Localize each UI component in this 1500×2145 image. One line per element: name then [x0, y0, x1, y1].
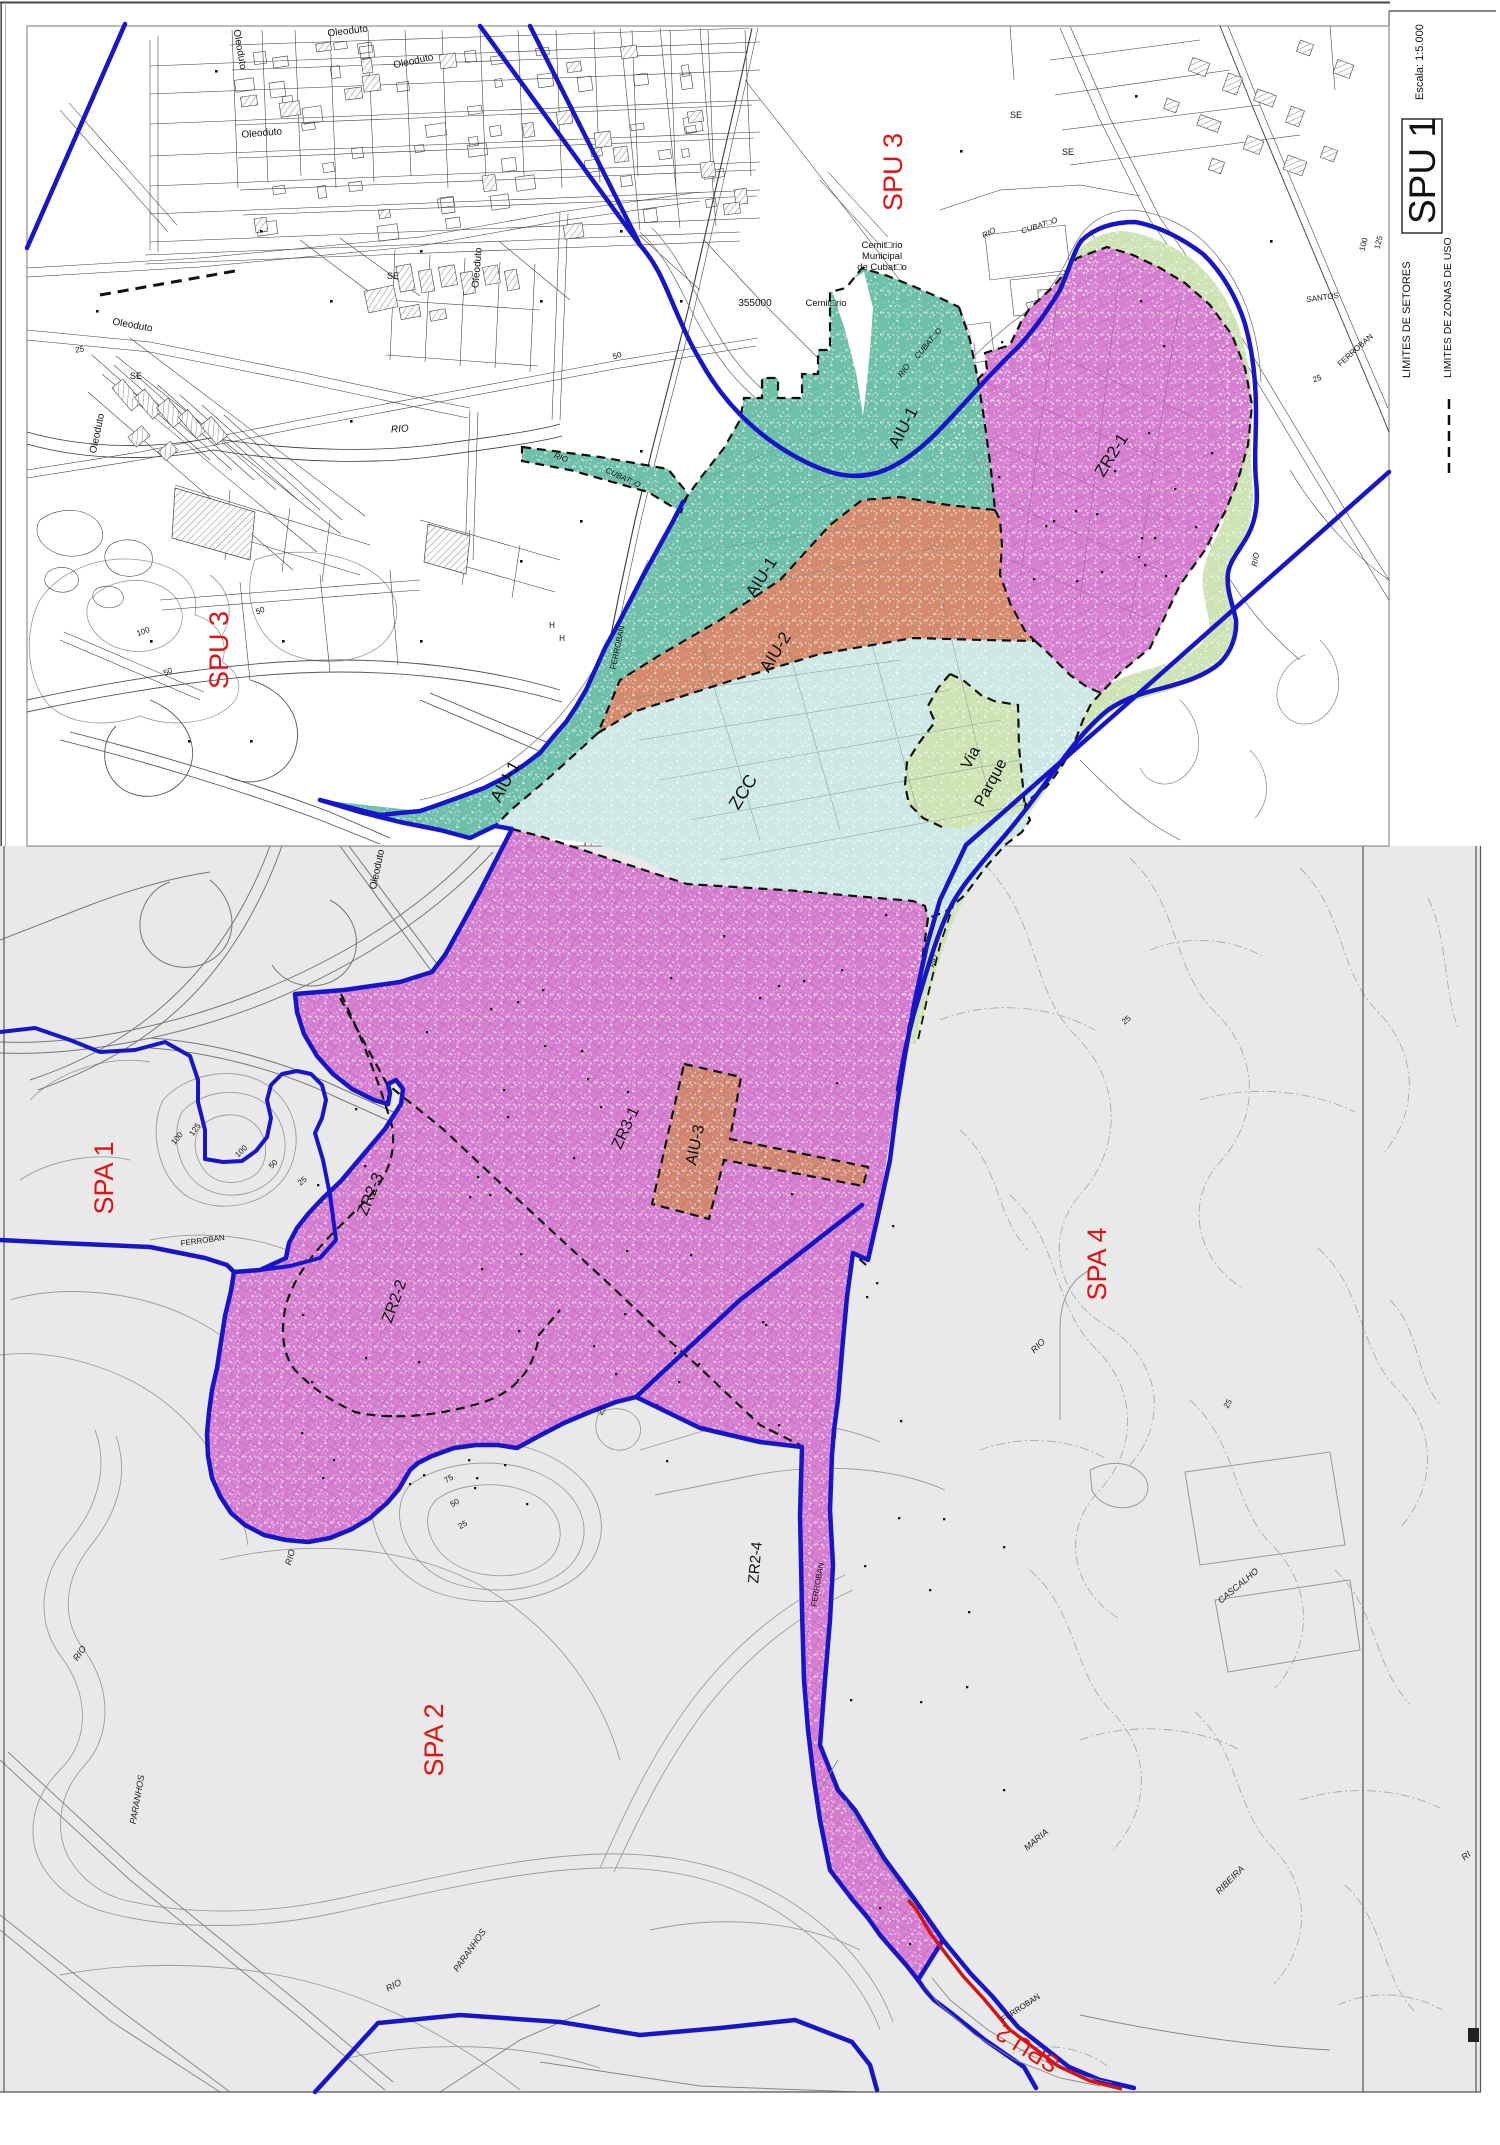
svg-text:LIMITES DE SETORES: LIMITES DE SETORES [1401, 261, 1413, 378]
svg-text:SPU 3: SPU 3 [878, 133, 908, 211]
svg-text:Cemit□rio: Cemit□rio [861, 240, 902, 251]
svg-text:Escala: 1:5.000: Escala: 1:5.000 [1414, 24, 1426, 100]
svg-text:SPA 1: SPA 1 [89, 1141, 119, 1214]
svg-text:LIMITES DE ZONAS DE USO: LIMITES DE ZONAS DE USO [1442, 237, 1454, 378]
svg-text:Municipal: Municipal [862, 251, 902, 262]
svg-text:SPU 3: SPU 3 [204, 611, 234, 689]
svg-text:355000: 355000 [738, 298, 772, 309]
svg-text:de Cubat□o: de Cubat□o [857, 262, 907, 273]
svg-text:Cemit□rio: Cemit□rio [805, 298, 846, 309]
svg-text:ZR2-4: ZR2-4 [745, 1541, 766, 1584]
svg-text:H: H [549, 621, 555, 630]
svg-text:SPA 4: SPA 4 [1082, 1227, 1112, 1300]
svg-text:SE: SE [1010, 110, 1022, 120]
svg-text:SPA 2: SPA 2 [419, 1703, 449, 1776]
svg-text:H: H [559, 634, 565, 643]
svg-text:RIO: RIO [391, 423, 410, 435]
svg-text:SPU 1: SPU 1 [1402, 117, 1443, 224]
svg-text:SE: SE [387, 271, 399, 281]
svg-text:SE: SE [130, 371, 142, 381]
svg-text:SE: SE [1062, 147, 1074, 157]
